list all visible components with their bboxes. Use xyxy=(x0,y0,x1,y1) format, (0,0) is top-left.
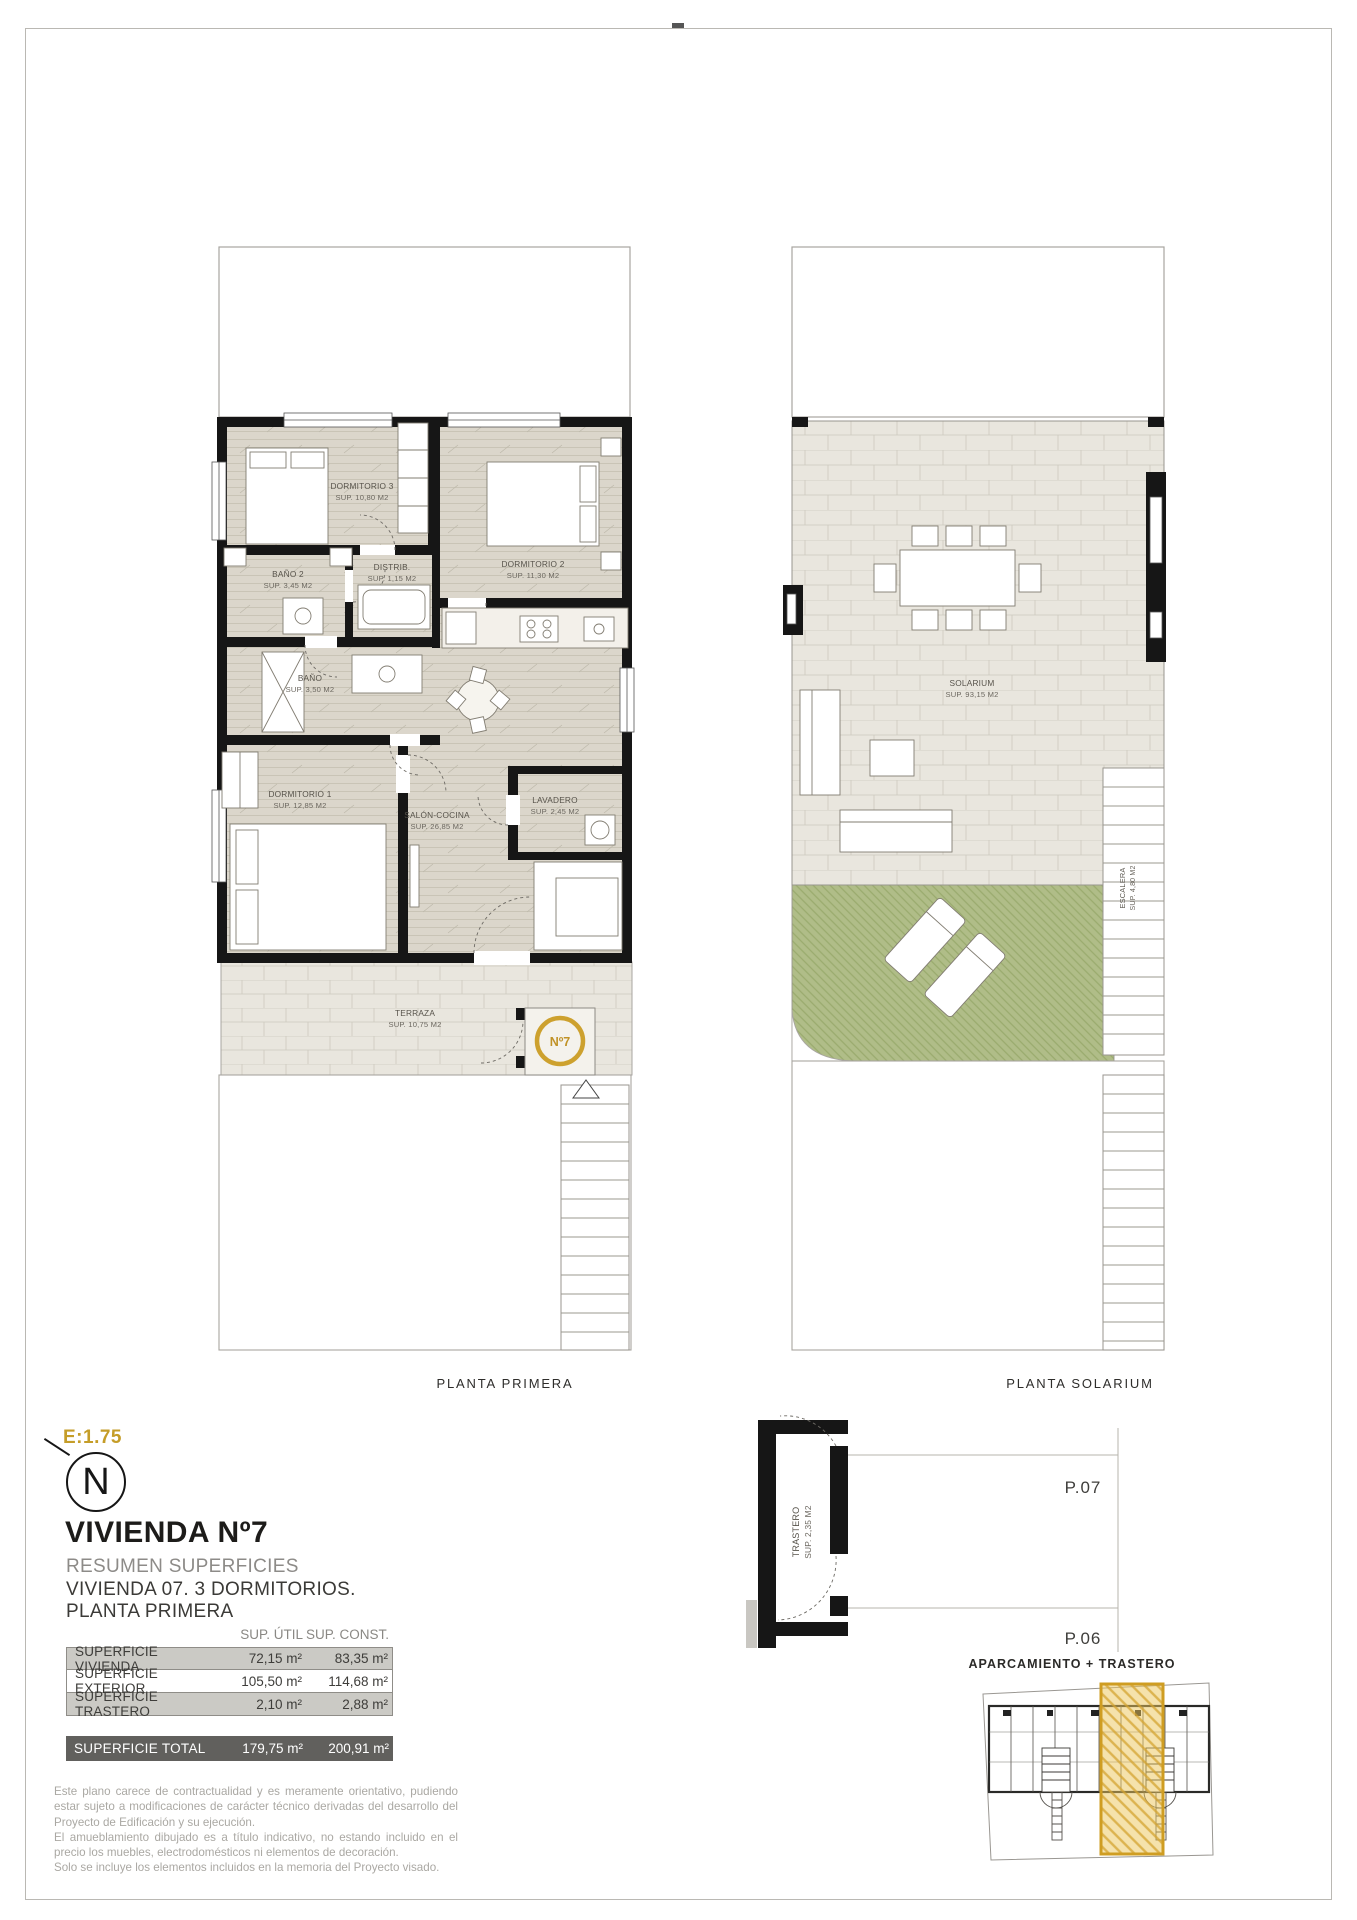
svg-text:BAÑO 2: BAÑO 2 xyxy=(272,569,304,579)
svg-text:BAÑO: BAÑO xyxy=(298,673,323,683)
sheet-subtitle-planta: PLANTA PRIMERA xyxy=(66,1601,234,1623)
svg-text:DORMITORIO 2: DORMITORIO 2 xyxy=(501,559,564,569)
svg-text:SUP. 26,85 M2: SUP. 26,85 M2 xyxy=(410,822,463,831)
plan-sheet: Nº7 DORMITORIO 3 SUP. 10,80 M2 DORMITORI… xyxy=(0,0,1357,1920)
svg-text:DORMITORIO 3: DORMITORIO 3 xyxy=(330,481,393,491)
caption-planta-primera: PLANTA PRIMERA xyxy=(375,1376,635,1391)
table-row-total: SUPERFICIE TOTAL 179,75 m² 200,91 m² xyxy=(66,1736,393,1761)
table-row-trastero: SUPERFICIE TRASTERO 2,10 m² 2,88 m² xyxy=(66,1693,393,1716)
unit-badge-label: Nº7 xyxy=(550,1035,571,1049)
disclaimer-paragraph-1: Este plano carece de contractualidad y e… xyxy=(54,1784,458,1830)
site-key-plan xyxy=(983,1683,1213,1860)
svg-text:SUP. 11,30 M2: SUP. 11,30 M2 xyxy=(507,571,560,580)
patio-outline-top xyxy=(219,247,630,417)
patio-outline-top-solarium xyxy=(792,247,1164,417)
svg-text:SALÓN-COCINA: SALÓN-COCINA xyxy=(404,810,470,820)
sheet-title: VIVIENDA Nº7 xyxy=(65,1516,268,1550)
trastero-wall-stub xyxy=(746,1600,757,1648)
col-sup-const: SUP. CONST. xyxy=(303,1627,393,1642)
lower-yard-solarium xyxy=(792,1061,1164,1350)
svg-text:SUP. 2,35 M2: SUP. 2,35 M2 xyxy=(803,1505,813,1559)
parking-spot-p07: P.07 xyxy=(1065,1478,1102,1497)
disclaimer-text: Este plano carece de contractualidad y e… xyxy=(54,1784,458,1876)
caption-aparcamiento: APARCAMIENTO + TRASTERO xyxy=(969,1657,1176,1671)
svg-text:DORMITORIO 1: DORMITORIO 1 xyxy=(268,789,331,799)
lower-yard xyxy=(219,1075,631,1350)
svg-text:SUP. 3,45 M2: SUP. 3,45 M2 xyxy=(264,581,313,590)
svg-text:SUP. 2,45 M2: SUP. 2,45 M2 xyxy=(531,807,580,816)
surfaces-table: SUP. ÚTIL SUP. CONST. SUPERFICIE VIVIEND… xyxy=(66,1627,393,1761)
col-sup-util: SUP. ÚTIL xyxy=(217,1627,303,1642)
svg-text:TRASTERO: TRASTERO xyxy=(791,1507,801,1558)
disclaimer-paragraph-3: Solo se incluye los elementos incluidos … xyxy=(54,1860,458,1875)
scale-label: E:1.75 xyxy=(63,1427,122,1449)
svg-text:SUP. 10,75 M2: SUP. 10,75 M2 xyxy=(388,1020,441,1029)
disclaimer-paragraph-2: El amueblamiento dibujado es a título in… xyxy=(54,1830,458,1861)
svg-text:ESCALERA: ESCALERA xyxy=(1118,867,1127,908)
svg-text:SUP. 4,80 M2: SUP. 4,80 M2 xyxy=(1130,865,1137,910)
parking-trastero-plan: TRASTERO SUP. 2,35 M2 P.07 P.06 APARCAMI… xyxy=(735,1408,1225,1868)
svg-text:DISTRIB.: DISTRIB. xyxy=(374,562,411,572)
caption-planta-solarium: PLANTA SOLARIUM xyxy=(950,1376,1210,1391)
floorplan-planta-solarium: ESCALERA SUP. 4,80 M2 xyxy=(775,240,1175,1385)
unit-badge: Nº7 xyxy=(525,1008,595,1075)
svg-text:SUP. 10,80 M2: SUP. 10,80 M2 xyxy=(335,493,388,502)
north-arrow: N xyxy=(66,1452,126,1512)
svg-text:LAVADERO: LAVADERO xyxy=(532,795,578,805)
floorplan-planta-primera: Nº7 DORMITORIO 3 SUP. 10,80 M2 DORMITORI… xyxy=(190,240,645,1385)
trastero-label: TRASTERO SUP. 2,35 M2 xyxy=(791,1505,813,1559)
svg-text:TERRAZA: TERRAZA xyxy=(395,1008,435,1018)
svg-text:SUP. 12,85 M2: SUP. 12,85 M2 xyxy=(273,801,326,810)
sheet-subtitle-resumen: RESUMEN SUPERFICIES xyxy=(66,1556,299,1578)
sheet-subtitle-vivienda: VIVIENDA 07. 3 DORMITORIOS. xyxy=(66,1579,356,1601)
svg-text:SUP. 93,15 M2: SUP. 93,15 M2 xyxy=(945,690,998,699)
svg-text:SUP. 1,15 M2: SUP. 1,15 M2 xyxy=(368,574,417,583)
parking-spot-p06: P.06 xyxy=(1065,1629,1102,1648)
parking-lines xyxy=(848,1428,1118,1652)
north-letter: N xyxy=(82,1463,109,1501)
highlighted-unit-band xyxy=(1101,1684,1163,1854)
solarium-stairs: ESCALERA SUP. 4,80 M2 xyxy=(1103,768,1164,1055)
svg-text:SUP. 3,50 M2: SUP. 3,50 M2 xyxy=(286,685,335,694)
print-mark xyxy=(672,23,684,28)
svg-text:SOLARIUM: SOLARIUM xyxy=(950,678,995,688)
